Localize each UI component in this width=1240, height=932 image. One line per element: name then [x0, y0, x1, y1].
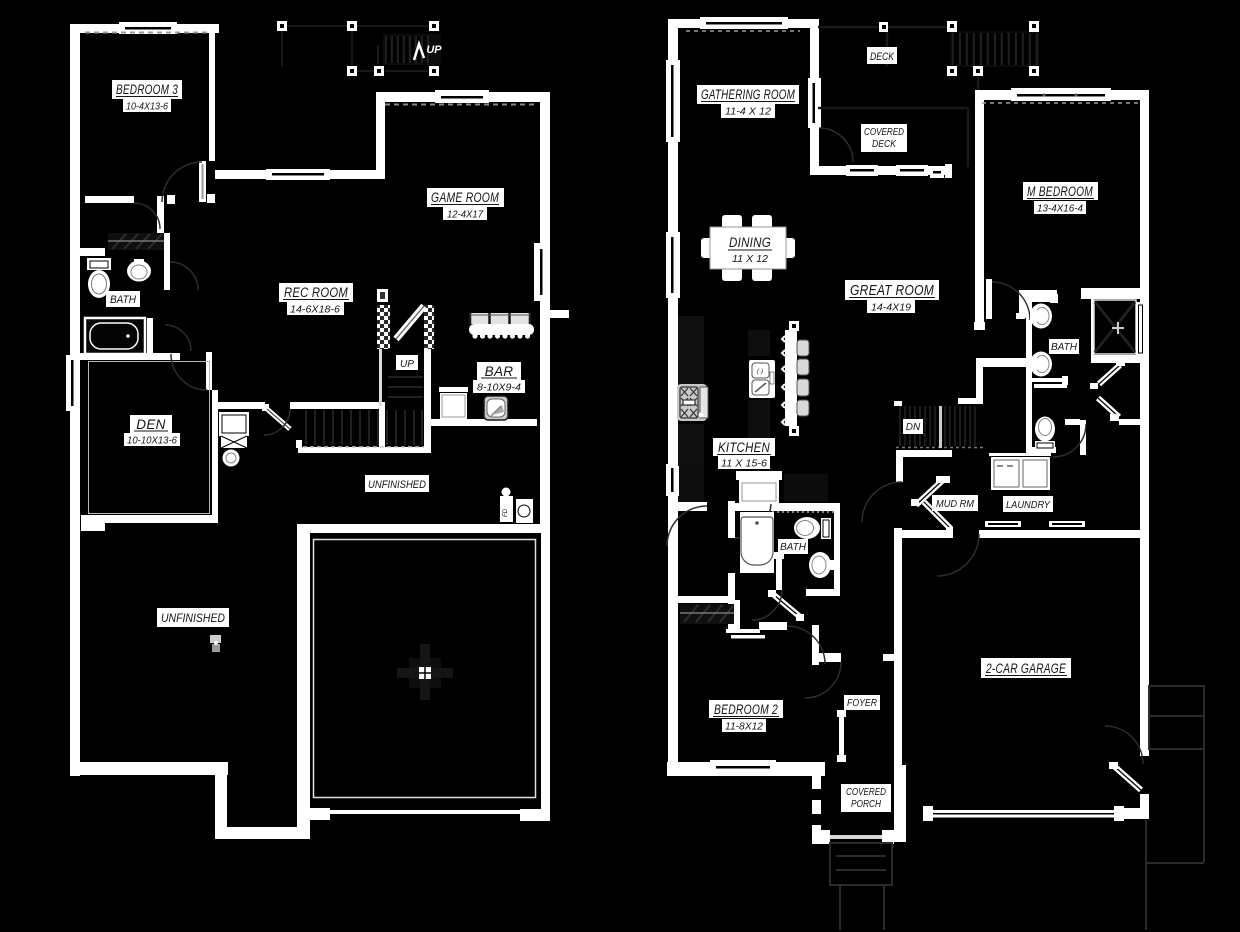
svg-text:BEDROOM 2: BEDROOM 2: [714, 702, 778, 717]
svg-text:GATHERING ROOM: GATHERING ROOM: [701, 87, 795, 102]
svg-text:13-4X16-4: 13-4X16-4: [1037, 203, 1083, 215]
svg-text:11 X 15-6: 11 X 15-6: [721, 458, 767, 470]
svg-text:GREAT ROOM: GREAT ROOM: [850, 283, 935, 299]
svg-text:GAME ROOM: GAME ROOM: [431, 190, 499, 205]
svg-text:14-6X18-6: 14-6X18-6: [290, 304, 340, 316]
svg-text:BEDROOM 3: BEDROOM 3: [116, 82, 178, 97]
svg-text:DEN: DEN: [136, 417, 165, 432]
svg-text:DN: DN: [906, 422, 921, 433]
svg-text:DECK: DECK: [872, 139, 897, 150]
svg-text:REC ROOM: REC ROOM: [284, 285, 348, 300]
svg-text:BATH: BATH: [780, 542, 807, 553]
svg-text:11-4 X 12: 11-4 X 12: [725, 106, 771, 118]
svg-text:2-CAR GARAGE: 2-CAR GARAGE: [985, 661, 1066, 676]
svg-text:10-10X13-6: 10-10X13-6: [127, 435, 177, 447]
svg-text:10-4X13-6: 10-4X13-6: [126, 101, 168, 113]
svg-text:BAR: BAR: [485, 364, 514, 379]
svg-text:BATH: BATH: [1051, 342, 1078, 353]
svg-text:14-4X19: 14-4X19: [871, 302, 911, 314]
svg-text:11-8X12: 11-8X12: [725, 721, 763, 733]
svg-text:DINING: DINING: [729, 235, 771, 250]
svg-text:FOYER: FOYER: [847, 698, 877, 709]
svg-text:FD: FD: [503, 508, 509, 517]
svg-text:8-10X9-4: 8-10X9-4: [477, 382, 521, 394]
svg-text:PORCH: PORCH: [851, 799, 882, 810]
svg-text:COVERED: COVERED: [846, 787, 886, 798]
svg-text:BATH: BATH: [110, 294, 136, 306]
svg-text:M BEDROOM: M BEDROOM: [1027, 184, 1093, 199]
svg-text:LAUNDRY: LAUNDRY: [1006, 500, 1051, 511]
svg-text:(·): (·): [757, 369, 763, 375]
svg-text:UP: UP: [400, 359, 414, 370]
svg-text:MUD RM: MUD RM: [936, 499, 975, 510]
svg-text:12-4X17: 12-4X17: [447, 209, 484, 221]
svg-text:UNFINISHED: UNFINISHED: [161, 611, 225, 625]
svg-text:KITCHEN: KITCHEN: [718, 440, 770, 455]
svg-text:11 X 12: 11 X 12: [732, 253, 768, 265]
svg-text:UP: UP: [426, 44, 442, 56]
svg-text:DECK: DECK: [870, 51, 895, 63]
svg-text:COVERED: COVERED: [864, 127, 904, 138]
svg-text:UNFINISHED: UNFINISHED: [368, 479, 426, 491]
